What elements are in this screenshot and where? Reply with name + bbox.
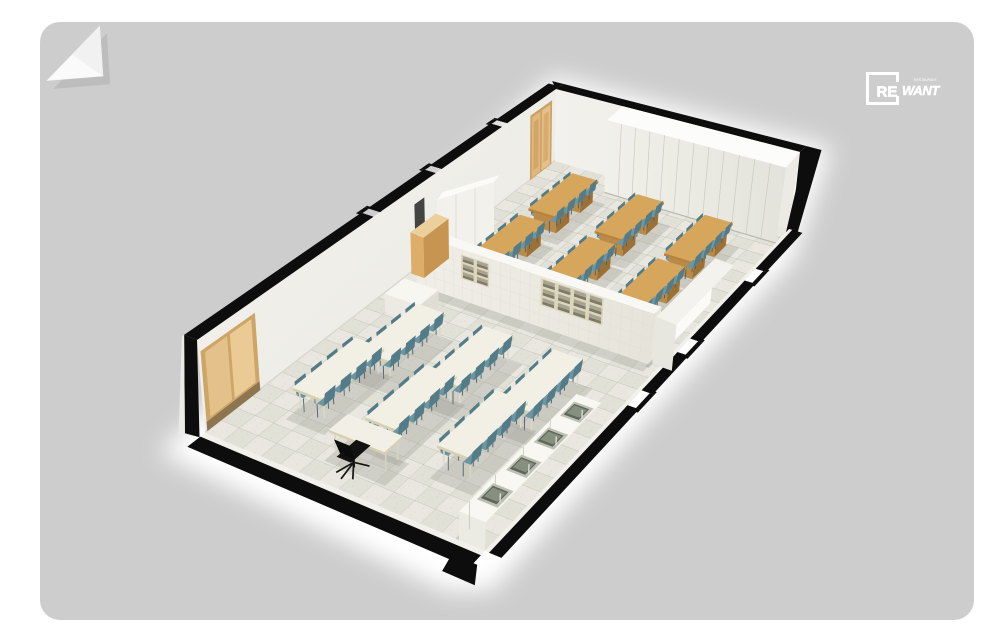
- svg-text:WANT: WANT: [902, 83, 940, 98]
- svg-text:RE: RE: [877, 84, 898, 101]
- svg-text:RESTAURANT: RESTAURANT: [914, 78, 938, 82]
